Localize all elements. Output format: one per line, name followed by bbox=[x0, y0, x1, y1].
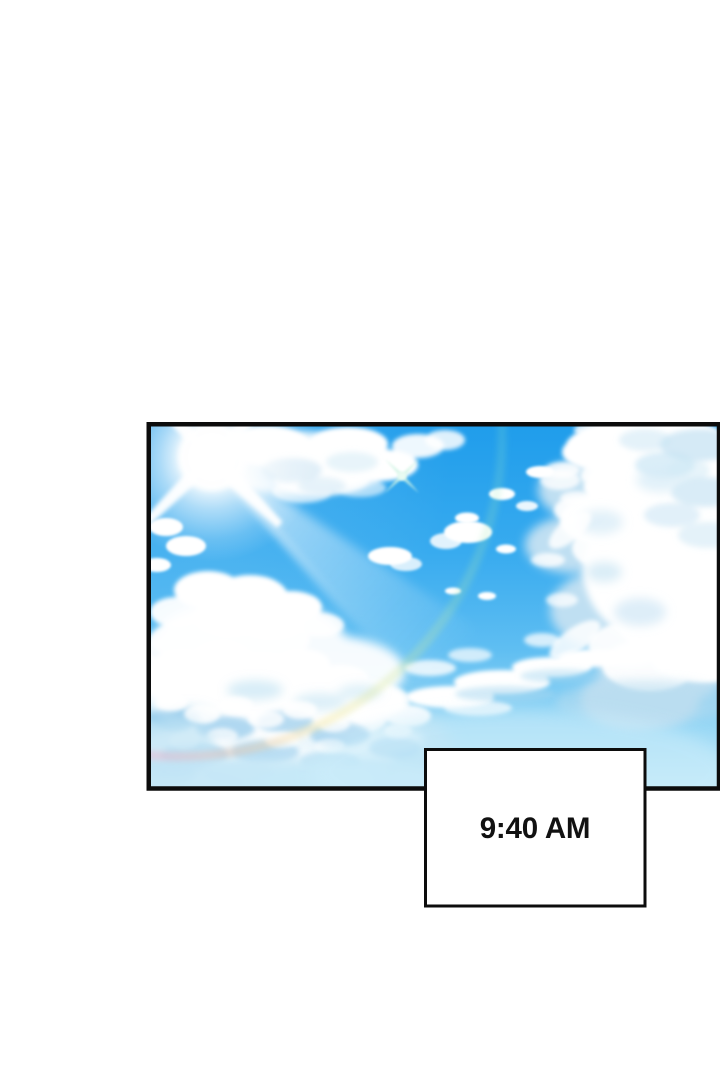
svg-text:9:40 AM: 9:40 AM bbox=[480, 812, 591, 845]
